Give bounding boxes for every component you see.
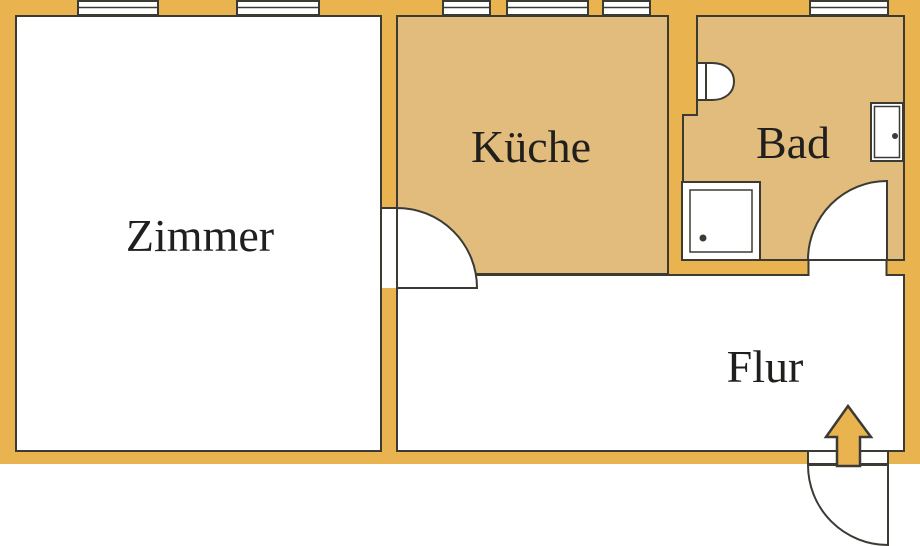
wall-bottom [0,451,920,464]
window-icon [443,1,490,15]
floor-plan: Zimmer Küche Bad Flur [0,0,920,546]
window-icon [603,1,650,15]
room-label-zimmer: Zimmer [126,213,274,259]
window-icon [78,1,158,15]
entrance-jamb-right [860,451,888,464]
window-icon [810,1,888,15]
floor-plan-drawing [0,0,920,546]
room-label-bad: Bad [756,120,830,166]
wall-zimmer-upper [381,16,397,208]
wall-bad-bottom-right [887,260,904,275]
room-label-kueche: Küche [471,124,591,170]
room-label-flur: Flur [727,344,804,390]
toilet-icon [697,63,734,100]
wall-right [904,0,920,464]
wall-bad-bottom-left [683,260,808,275]
bad-doorway-gap [809,262,886,276]
entrance-door-swing-icon [808,465,888,545]
entrance-jamb-left [808,451,837,464]
wash-basin-icon [871,103,903,161]
room-flur [397,275,904,451]
window-icon [507,1,588,15]
wall-left [0,0,16,464]
window-icon [237,1,319,15]
wall-zimmer-lower [381,288,397,451]
shower-tray-icon [682,182,760,260]
